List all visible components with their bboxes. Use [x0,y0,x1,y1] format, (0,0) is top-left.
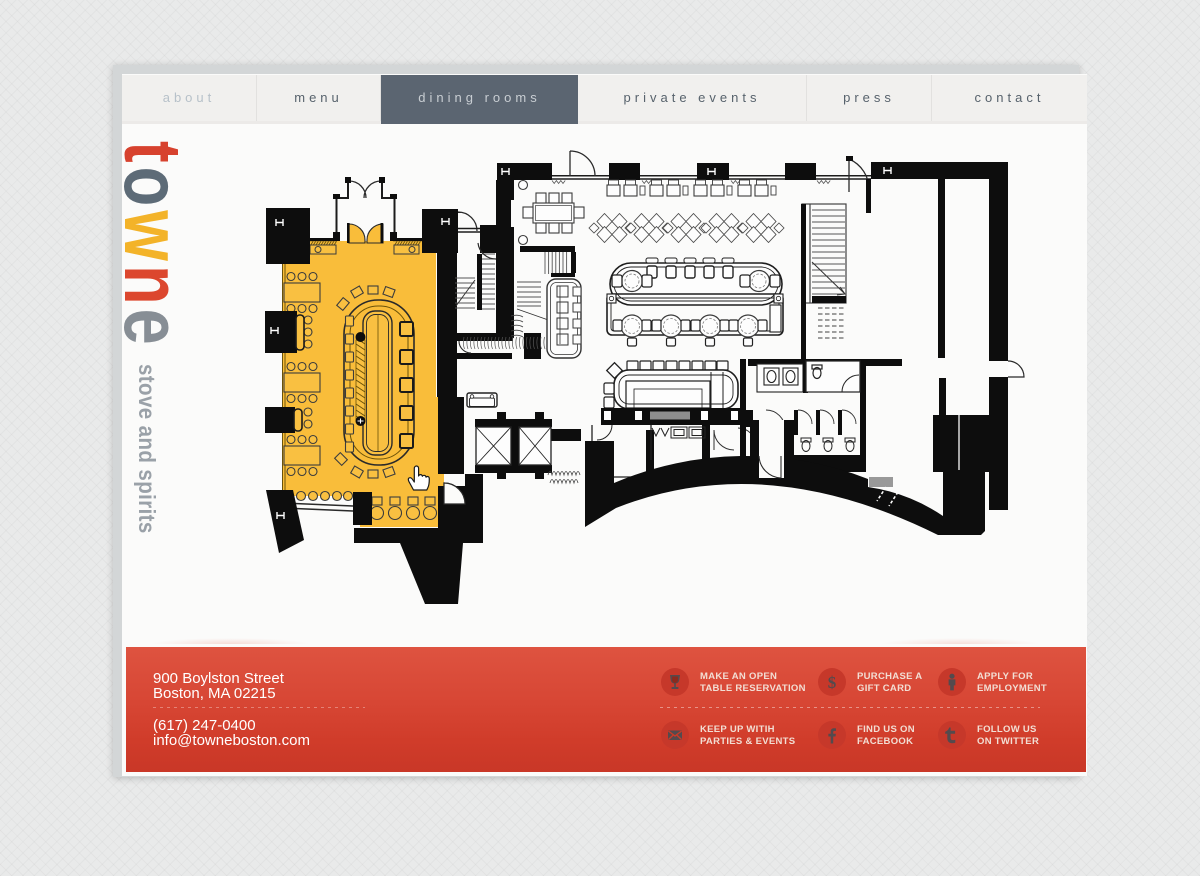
svg-text:$: $ [828,673,837,692]
